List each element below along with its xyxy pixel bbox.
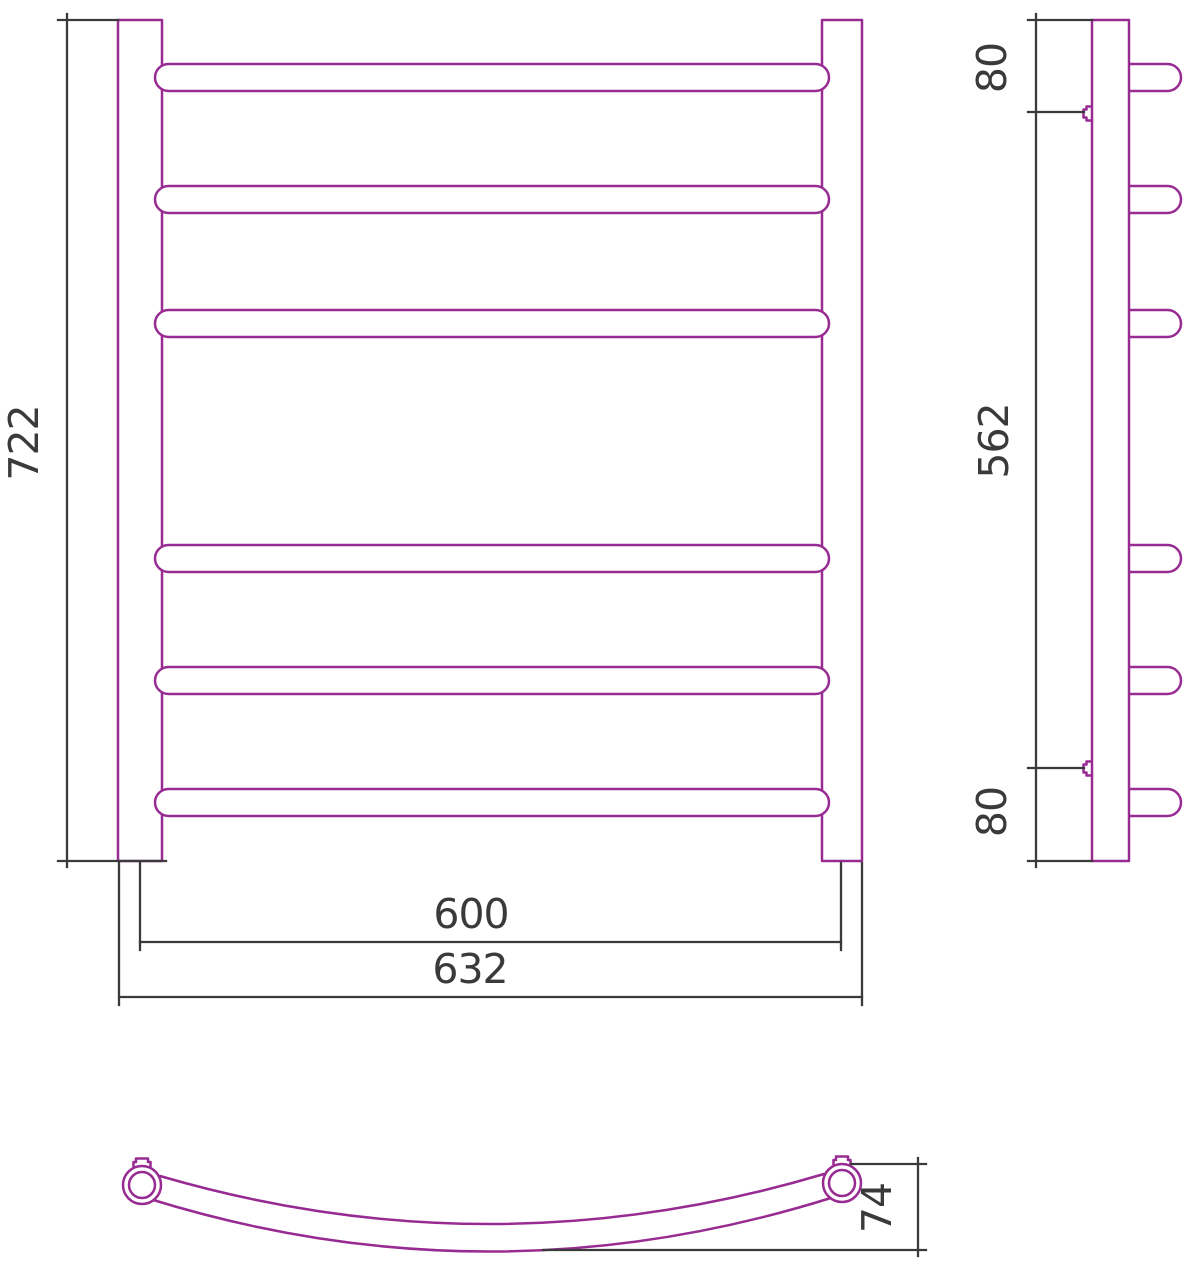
dimension-top-offset-value: 80 [968, 43, 1016, 93]
bottom-dimensions: 74 [543, 1158, 926, 1256]
dimension-depth: 74 [853, 1183, 901, 1233]
front-bar-1 [155, 64, 829, 91]
front-right-post [822, 20, 862, 861]
dimension-bracket-span-value: 562 [970, 403, 1018, 478]
dimension-depth-value: 74 [853, 1183, 901, 1233]
front-bar-6 [155, 789, 829, 816]
front-left-post [118, 20, 162, 861]
side-dimensions: 80 562 80 [968, 14, 1092, 867]
dimension-overall-width-value: 632 [432, 945, 507, 993]
front-bar-3 [155, 310, 829, 337]
dimension-bottom-offset-value: 80 [968, 787, 1016, 837]
bottom-view [123, 1157, 861, 1252]
dimension-height-value: 722 [0, 405, 48, 480]
drawing-canvas: 722 600 632 [0, 0, 1200, 1273]
dimension-bar-span-value: 600 [433, 890, 508, 938]
technical-drawing: 722 600 632 [0, 0, 1200, 1273]
front-bar-2 [155, 186, 829, 213]
front-bar-4 [155, 545, 829, 572]
bottom-right-post-inner [829, 1170, 855, 1196]
bottom-tube-inner-arc [160, 1174, 824, 1224]
bottom-left-post-inner [129, 1172, 155, 1198]
dimension-top-offset: 80 [968, 43, 1016, 93]
side-view [1084, 20, 1182, 861]
dimension-bar-span: 600 [140, 863, 841, 950]
front-view [118, 20, 862, 861]
dimension-bottom-offset: 80 [968, 787, 1016, 837]
front-bar-5 [155, 667, 829, 694]
side-post-profile [1092, 20, 1129, 861]
dimension-bracket-span: 562 [970, 403, 1018, 478]
